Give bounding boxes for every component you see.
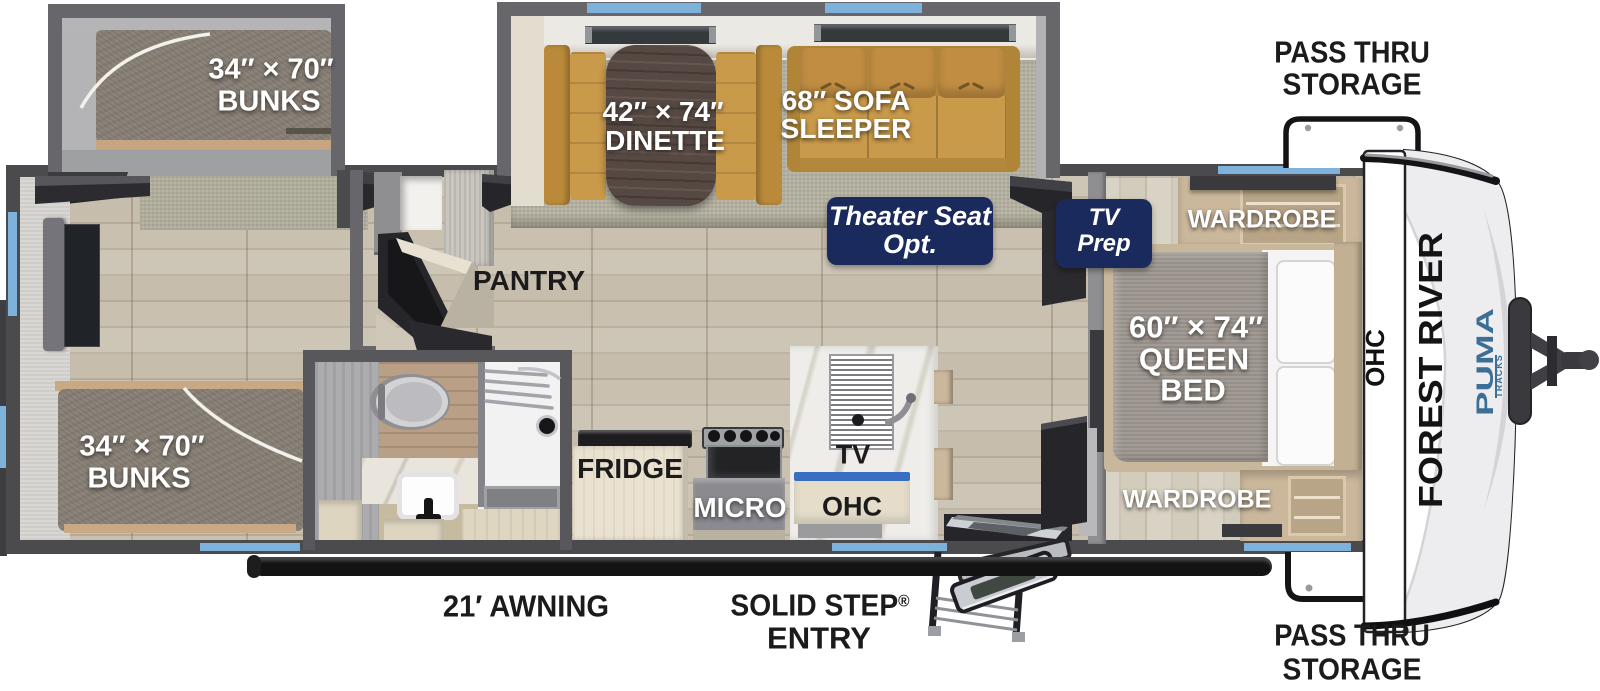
- svg-text:OHC: OHC: [1360, 329, 1390, 387]
- svg-text:FOREST RIVER: FOREST RIVER: [1412, 232, 1449, 508]
